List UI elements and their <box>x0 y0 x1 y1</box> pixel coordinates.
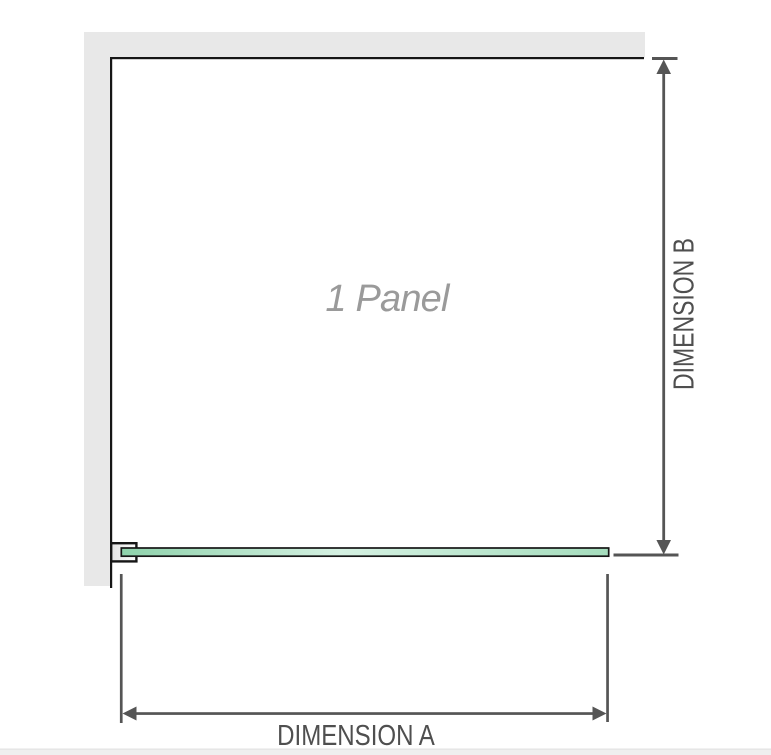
svg-text:DIMENSION B: DIMENSION B <box>667 238 700 390</box>
svg-text:1 Panel: 1 Panel <box>325 278 451 320</box>
svg-text:DIMENSION A: DIMENSION A <box>277 719 435 752</box>
